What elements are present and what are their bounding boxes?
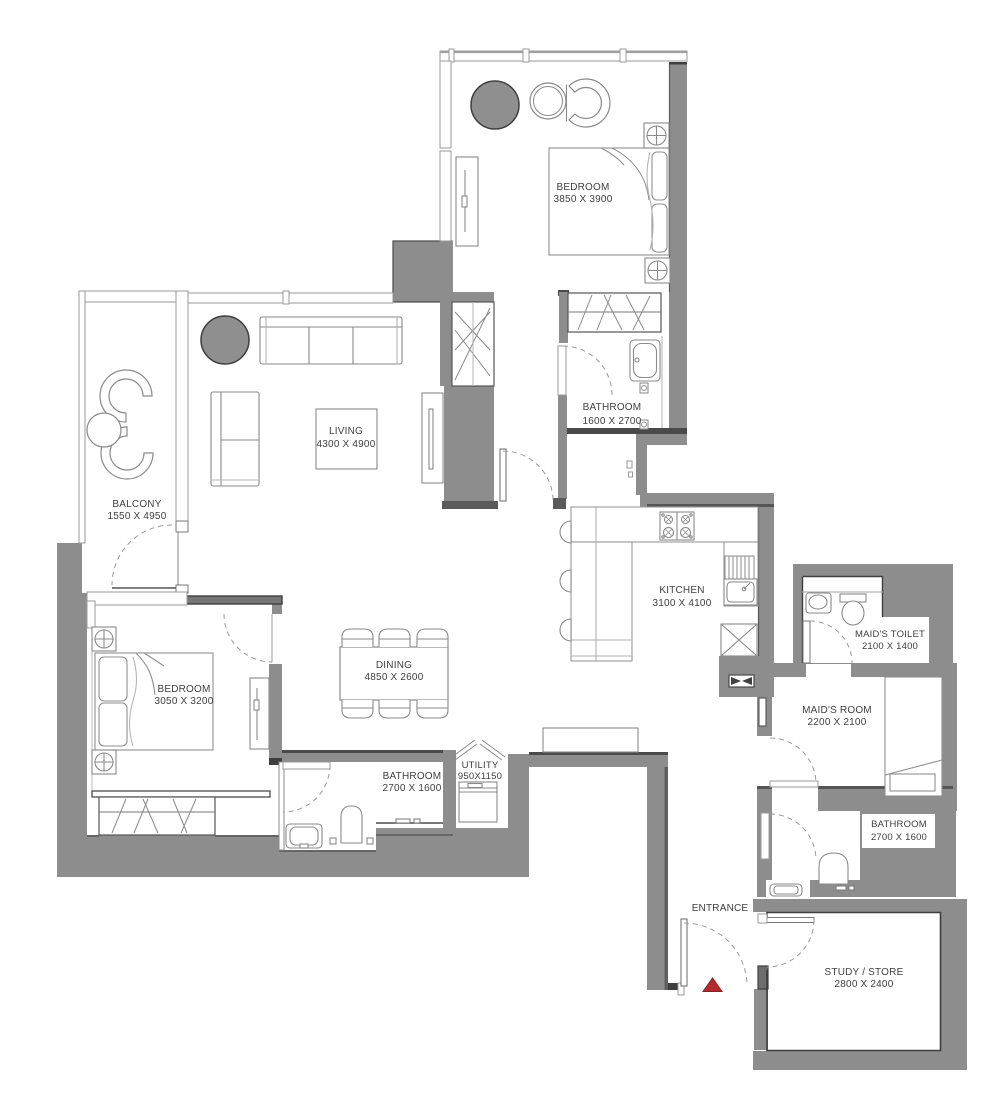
svg-text:KITCHEN: KITCHEN (659, 585, 704, 596)
svg-text:UTILITY: UTILITY (462, 760, 499, 771)
svg-text:4300 X 4900: 4300 X 4900 (317, 439, 376, 450)
svg-text:MAID'S ROOM: MAID'S ROOM (802, 705, 872, 716)
svg-text:2200 X 2100: 2200 X 2100 (808, 717, 867, 728)
svg-text:STUDY / STORE: STUDY / STORE (825, 967, 904, 978)
svg-text:3100 X 4100: 3100 X 4100 (653, 598, 712, 609)
svg-text:2700 X 1600: 2700 X 1600 (871, 832, 927, 843)
svg-text:3850 X 3900: 3850 X 3900 (554, 194, 613, 205)
svg-text:DINING: DINING (376, 660, 412, 671)
svg-text:1600 X 2700: 1600 X 2700 (583, 416, 642, 427)
svg-text:950X1150: 950X1150 (458, 771, 502, 782)
svg-text:LIVING: LIVING (329, 426, 363, 437)
svg-text:2700 X 1600: 2700 X 1600 (383, 783, 442, 794)
svg-text:MAID'S TOILET: MAID'S TOILET (855, 629, 925, 640)
svg-text:BATHROOM: BATHROOM (583, 402, 642, 413)
svg-text:2100 X 1400: 2100 X 1400 (862, 641, 918, 652)
svg-text:BALCONY: BALCONY (112, 499, 161, 510)
svg-text:ENTRANCE: ENTRANCE (692, 903, 749, 914)
svg-text:3050 X 3200: 3050 X 3200 (155, 696, 214, 707)
svg-text:BEDROOM: BEDROOM (157, 684, 210, 695)
svg-text:4850 X 2600: 4850 X 2600 (365, 672, 424, 683)
svg-text:2800 X 2400: 2800 X 2400 (835, 979, 894, 990)
svg-text:BATHROOM: BATHROOM (383, 771, 442, 782)
svg-text:BEDROOM: BEDROOM (556, 182, 609, 193)
svg-text:BATHROOM: BATHROOM (871, 819, 927, 830)
svg-text:1550 X 4950: 1550 X 4950 (108, 511, 167, 522)
